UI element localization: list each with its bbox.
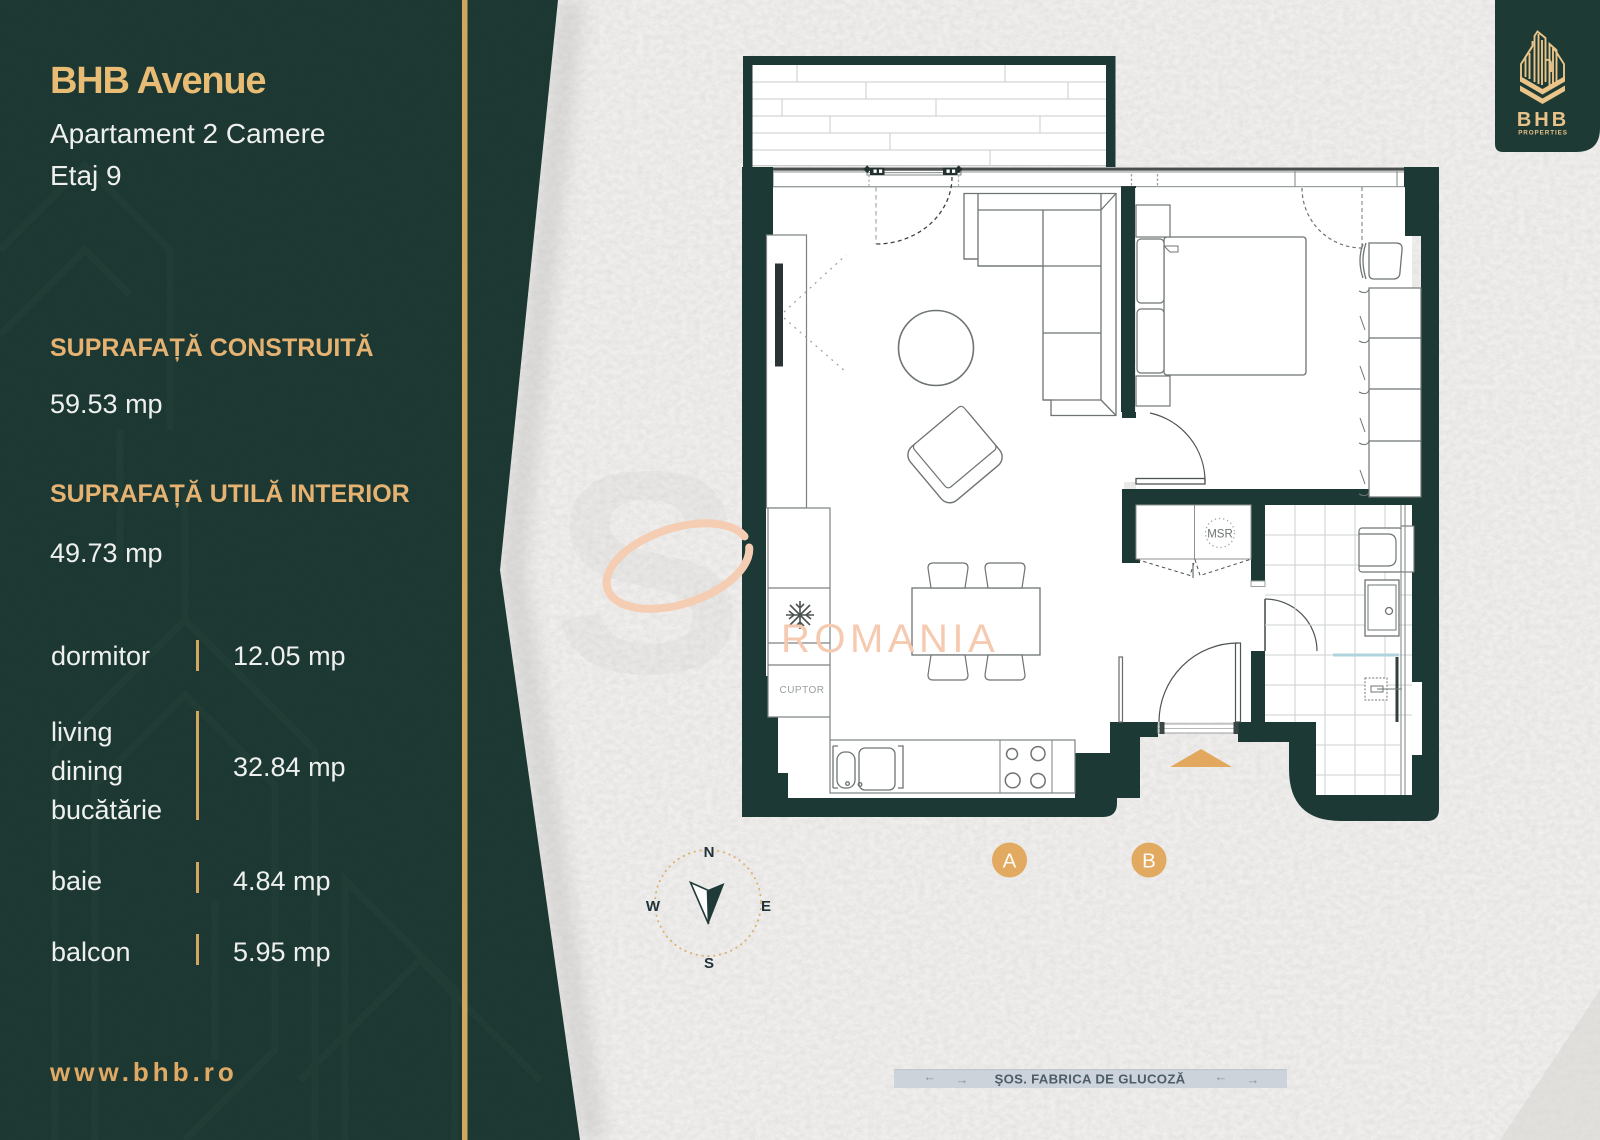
svg-text:ROMANIA: ROMANIA xyxy=(781,617,999,661)
svg-text:→: → xyxy=(956,1072,969,1087)
svg-text:E: E xyxy=(761,898,771,915)
svg-text:S: S xyxy=(704,955,714,972)
svg-text:ŞOS. FABRICA DE GLUCOZĂ: ŞOS. FABRICA DE GLUCOZĂ xyxy=(994,1072,1185,1087)
svg-text:CUPTOR: CUPTOR xyxy=(779,685,824,696)
svg-text:B: B xyxy=(1142,850,1156,873)
svg-text:←: ← xyxy=(924,1069,937,1084)
svg-text:W: W xyxy=(646,898,661,915)
svg-text:←: ← xyxy=(1215,1069,1228,1084)
svg-text:A: A xyxy=(1003,850,1017,873)
svg-text:N: N xyxy=(704,844,715,861)
svg-text:S: S xyxy=(552,412,744,734)
svg-text:→: → xyxy=(1247,1072,1260,1087)
svg-text:MSR: MSR xyxy=(1207,529,1233,541)
